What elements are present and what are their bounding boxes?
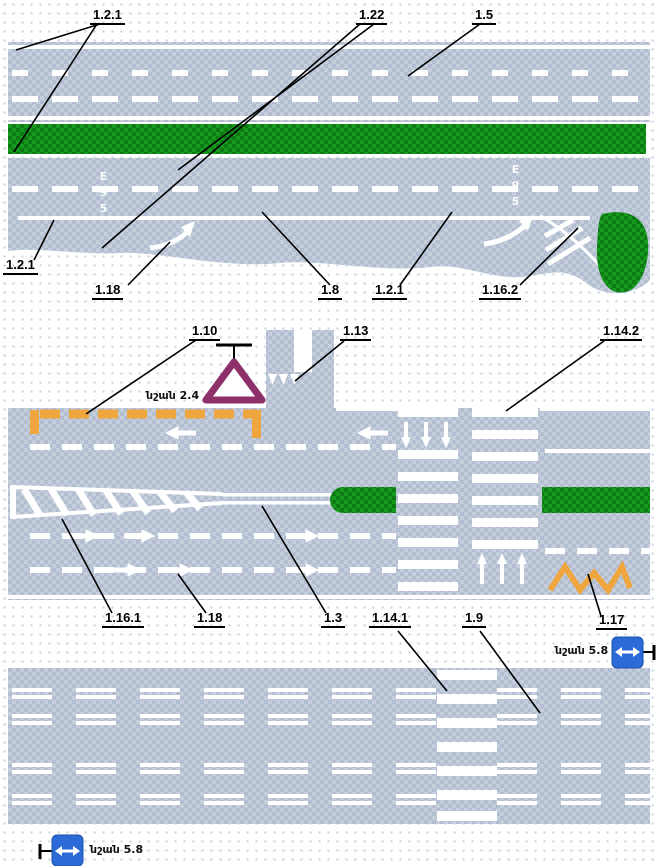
callout-1-18-top: 1.18 <box>92 283 123 300</box>
callout-1-16-2: 1.16.2 <box>479 283 521 300</box>
middle-road-top-edge-b <box>540 408 650 411</box>
callout-1-13: 1.13 <box>340 324 371 341</box>
edge-line-1-2-1-bottom <box>8 116 650 120</box>
edge-line-1-2-1-top <box>8 45 650 49</box>
callout-1-5: 1.5 <box>472 8 496 25</box>
callout-1-14-2: 1.14.2 <box>600 324 642 341</box>
middle-road-top-edge-a <box>336 408 398 411</box>
callout-1-14-1: 1.14.1 <box>369 611 411 628</box>
upper-solid-line-right <box>545 449 650 453</box>
diagram-canvas <box>0 0 658 866</box>
green-median-left <box>330 487 396 513</box>
callout-1-22: 1.22 <box>356 8 387 25</box>
top-road-green-median <box>8 124 646 154</box>
callout-1-9: 1.9 <box>462 611 486 628</box>
yield-sign-caption: նշան 2.4 <box>146 389 199 402</box>
callout-1-2-1-left: 1.2.1 <box>3 258 38 275</box>
reversible-sign-right-caption: նշան 5.8 <box>555 644 608 657</box>
route-number-text-left: Е95 <box>97 170 110 256</box>
callout-1-16-1: 1.16.1 <box>102 611 144 628</box>
give-way-line-1-13 <box>268 374 299 385</box>
top-road-upper-carriageway <box>8 42 650 122</box>
callout-1-3: 1.3 <box>321 611 345 628</box>
yield-sign-2-4 <box>206 345 262 400</box>
route-number-text-right: Е95 <box>509 163 522 219</box>
side-road-divider <box>294 330 312 372</box>
middle-road <box>8 330 650 600</box>
green-median-right <box>542 487 650 513</box>
callout-1-17: 1.17 <box>596 613 627 630</box>
callout-1-8: 1.8 <box>318 283 342 300</box>
reversible-sign-bottom-caption: նշան 5.8 <box>90 843 143 856</box>
callout-1-2-1-top: 1.2.1 <box>90 8 125 25</box>
callout-1-18-bottom: 1.18 <box>194 611 225 628</box>
road-markings-diagram: 1.2.1 1.22 1.5 1.2.1 1.18 1.8 1.2.1 1.16… <box>0 0 658 866</box>
bottom-road <box>8 668 650 824</box>
reversible-sign-5-8-bottom <box>40 835 83 866</box>
callout-1-10: 1.10 <box>189 324 220 341</box>
reversible-sign-5-8-right <box>612 637 654 668</box>
callout-1-2-1-mid: 1.2.1 <box>372 283 407 300</box>
